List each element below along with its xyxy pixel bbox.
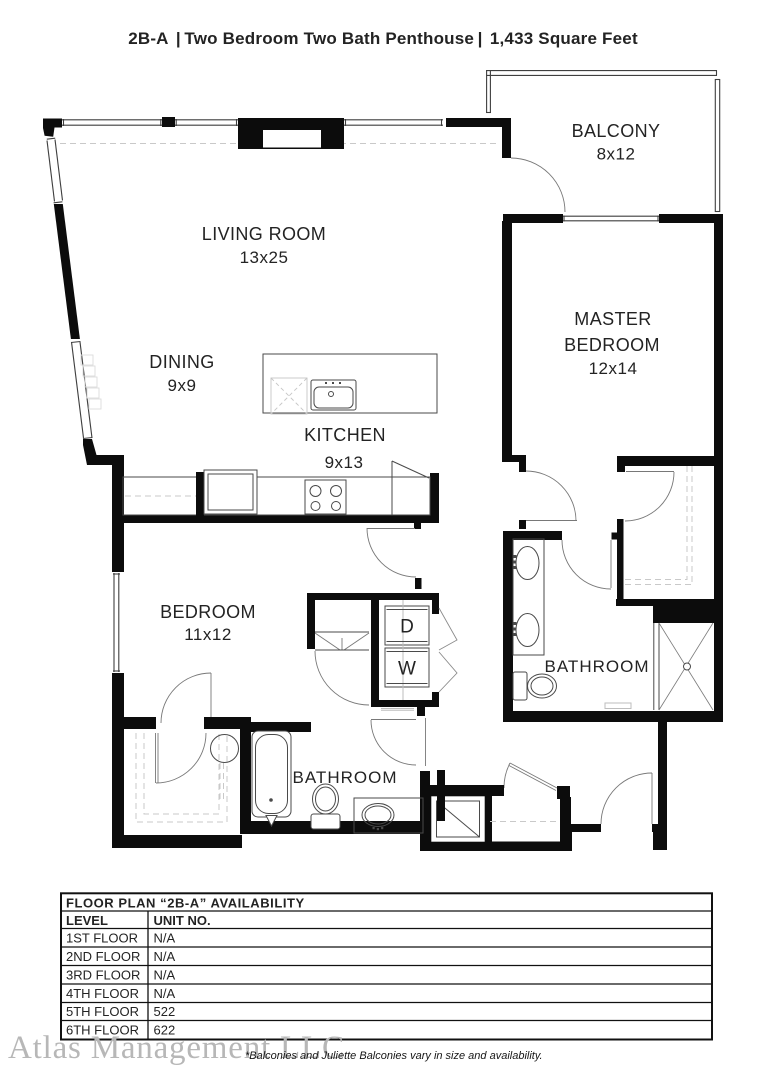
svg-text:4TH FLOOR: 4TH FLOOR: [66, 986, 139, 1001]
svg-text:9x9: 9x9: [168, 376, 197, 395]
svg-text:LEVEL: LEVEL: [66, 913, 108, 928]
svg-text:UNIT NO.: UNIT NO.: [154, 913, 211, 928]
svg-text:N/A: N/A: [154, 930, 176, 945]
svg-text:BEDROOM: BEDROOM: [160, 602, 256, 622]
svg-text:LIVING ROOM: LIVING ROOM: [202, 224, 326, 244]
svg-text:1ST FLOOR: 1ST FLOOR: [66, 930, 138, 945]
svg-text:13x25: 13x25: [240, 248, 289, 267]
svg-text:BATHROOM: BATHROOM: [545, 657, 650, 676]
svg-text:BATHROOM: BATHROOM: [293, 768, 398, 787]
svg-text:2B-A | Two Bedroom Two Bath P: 2B-A | Two Bedroom Two Bath Penthouse | …: [128, 29, 638, 48]
svg-text:*Balconies and Juliette Balcon: *Balconies and Juliette Balconies vary i…: [245, 1050, 543, 1062]
svg-text:KITCHEN: KITCHEN: [304, 425, 386, 445]
svg-text:2ND FLOOR: 2ND FLOOR: [66, 949, 140, 964]
svg-text:8x12: 8x12: [597, 145, 636, 164]
svg-text:N/A: N/A: [154, 986, 176, 1001]
svg-text:DINING: DINING: [149, 352, 214, 372]
svg-text:D: D: [400, 617, 414, 638]
svg-text:5TH FLOOR: 5TH FLOOR: [66, 1004, 139, 1019]
svg-text:12x14: 12x14: [589, 359, 638, 378]
svg-text:N/A: N/A: [154, 967, 176, 982]
svg-text:MASTER: MASTER: [574, 309, 651, 329]
svg-text:3RD FLOOR: 3RD FLOOR: [66, 967, 140, 982]
svg-text:522: 522: [154, 1004, 176, 1019]
svg-text:W: W: [398, 659, 416, 680]
svg-text:11x12: 11x12: [184, 625, 232, 644]
svg-text:FLOOR PLAN “2B-A” AVAILABILITY: FLOOR PLAN “2B-A” AVAILABILITY: [66, 896, 305, 911]
svg-text:N/A: N/A: [154, 949, 176, 964]
svg-text:BALCONY: BALCONY: [572, 121, 661, 141]
svg-text:9x13: 9x13: [325, 453, 364, 472]
svg-text:BEDROOM: BEDROOM: [564, 335, 660, 355]
